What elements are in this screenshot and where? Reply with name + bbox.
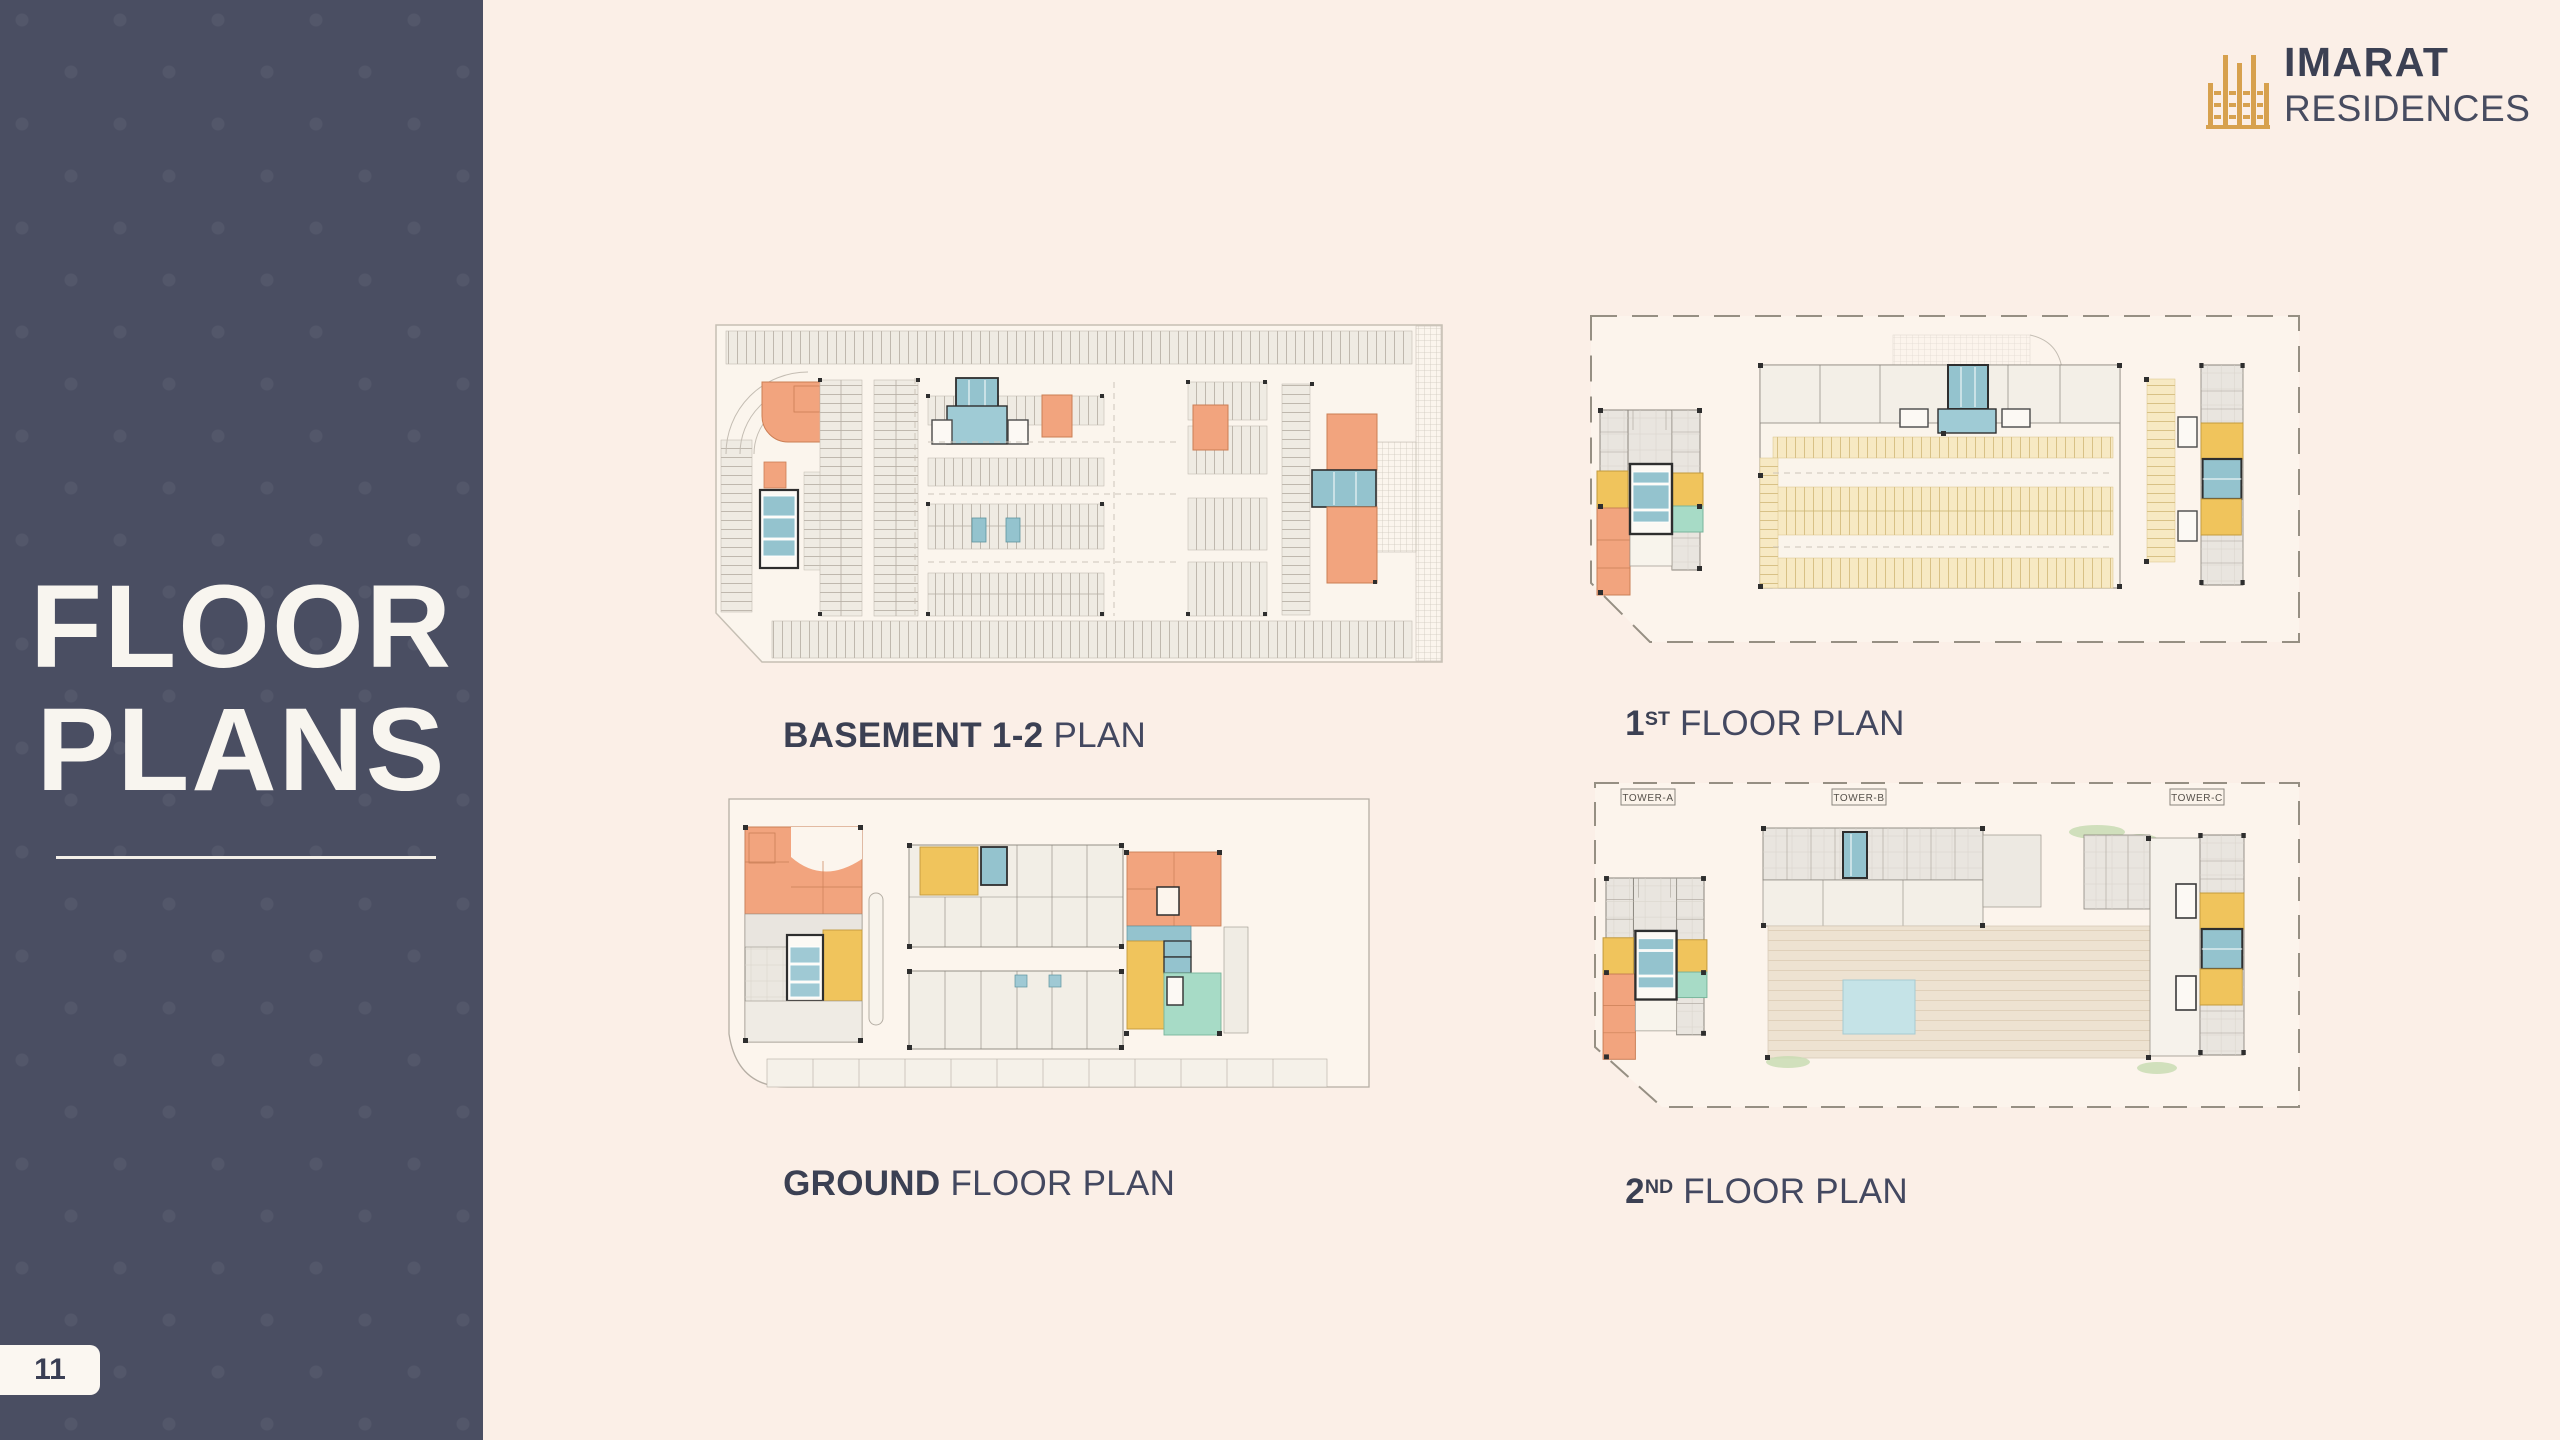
page-number-badge: 11 <box>0 1345 100 1395</box>
retail-row-top <box>909 845 1123 947</box>
slide: FLOOR PLANS 11 IMA <box>0 0 2560 1440</box>
page-number: 11 <box>34 1353 66 1387</box>
tower-b-label: TOWER-B <box>1833 793 1884 804</box>
ground-floor-plan-card <box>727 797 1372 1092</box>
plan-caption-first: 1ST FLOOR PLAN <box>1585 664 1905 784</box>
right-tower-strip <box>2199 363 2244 585</box>
caption-bold: BASEMENT 1-2 <box>783 716 1043 755</box>
plan-caption-ground: GROUND FLOOR PLAN <box>743 1124 1175 1244</box>
second-floor-plan-card: TOWER-A TOWER-B TOWER-C <box>1592 780 2312 1110</box>
basement-plan-card <box>710 322 1448 665</box>
brand-name: IMARAT RESIDENCES <box>2284 42 2531 129</box>
title-underline <box>56 856 436 859</box>
caption-rest: FLOOR PLAN <box>940 1164 1175 1203</box>
plan-caption-second: 2ND FLOOR PLAN <box>1585 1132 1908 1252</box>
caption-rest: FLOOR PLAN <box>1670 704 1905 743</box>
caption-superscript: ST <box>1645 708 1670 730</box>
tower-c-label: TOWER-C <box>2171 793 2223 804</box>
terrace-deck <box>1768 926 2150 1058</box>
plan-caption-basement: BASEMENT 1-2 PLAN <box>743 676 1146 796</box>
building-grid-icon <box>2206 49 2270 129</box>
parking-structure <box>1760 365 2120 588</box>
caption-bold: 1 <box>1625 704 1645 743</box>
caption-rest: PLAN <box>1043 716 1146 755</box>
left-lobby-block <box>745 827 862 1042</box>
bottom-shop-strip <box>767 1059 1327 1087</box>
brand-logo: IMARAT RESIDENCES <box>2206 42 2531 129</box>
caption-superscript: ND <box>1645 1176 1673 1198</box>
ramp-outline <box>869 893 883 1025</box>
tower-c-strip <box>2198 833 2246 1055</box>
ground-floor-plan-drawing <box>727 797 1372 1092</box>
first-floor-plan-drawing <box>1588 313 2303 645</box>
caption-rest: FLOOR PLAN <box>1673 1172 1908 1211</box>
page-title: FLOOR PLANS <box>0 566 483 811</box>
second-floor-plan-drawing: TOWER-A TOWER-B TOWER-C <box>1592 780 2312 1110</box>
caption-bold: GROUND <box>783 1164 940 1203</box>
sidebar: FLOOR PLANS 11 <box>0 0 483 1440</box>
first-floor-plan-card <box>1588 313 2303 645</box>
tower-a-label: TOWER-A <box>1622 793 1673 804</box>
retail-row-bottom <box>909 971 1123 1049</box>
page-title-line1: FLOOR <box>0 566 483 689</box>
brand-name-line2: RESIDENCES <box>2284 90 2531 127</box>
brand-name-line1: IMARAT <box>2284 42 2531 83</box>
caption-bold: 2 <box>1625 1172 1645 1211</box>
page-title-line2: PLANS <box>0 689 483 812</box>
basement-plan-drawing <box>710 322 1448 665</box>
pool <box>1843 980 1915 1034</box>
